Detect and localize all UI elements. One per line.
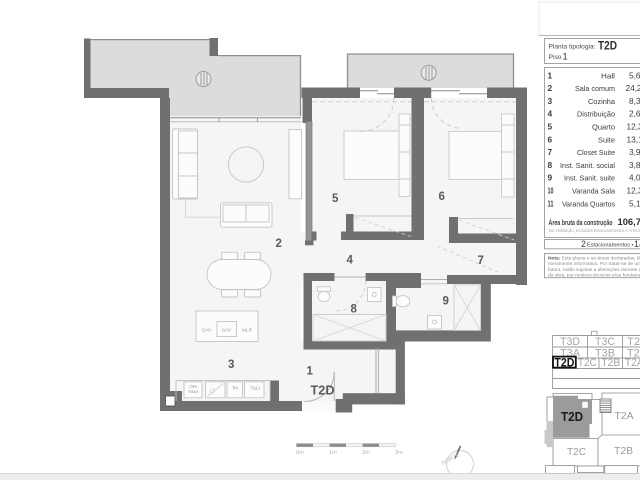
svg-text:MO: MO bbox=[189, 384, 197, 389]
svg-text:T2F: T2F bbox=[627, 336, 640, 348]
svg-text:11: 11 bbox=[548, 198, 554, 208]
svg-text:Inst. Sanit. suite: Inst. Sanit. suite bbox=[564, 174, 615, 183]
svg-text:2: 2 bbox=[581, 239, 586, 249]
svg-text:12,30: 12,30 bbox=[627, 122, 640, 132]
svg-text:5: 5 bbox=[548, 122, 553, 132]
svg-text:4: 4 bbox=[347, 255, 354, 267]
svg-text:Sut Habitação, excluídas Estac: Sut Habitação, excluídas Estacionamentos… bbox=[549, 228, 640, 233]
svg-text:Hall: Hall bbox=[601, 71, 615, 80]
svg-text:Closet Suite: Closet Suite bbox=[577, 148, 615, 157]
svg-text:Piso: Piso bbox=[549, 54, 562, 61]
svg-text:9: 9 bbox=[443, 296, 449, 308]
svg-text:1: 1 bbox=[307, 366, 314, 378]
svg-text:MLR: MLR bbox=[242, 327, 253, 333]
svg-text:8: 8 bbox=[351, 304, 358, 316]
svg-text:Nota: Esta planta e as áreas d: Nota: Esta planta e as áreas declaradas,… bbox=[548, 255, 640, 261]
svg-text:T2A: T2A bbox=[625, 357, 640, 369]
svg-text:7: 7 bbox=[478, 255, 484, 267]
svg-text:6: 6 bbox=[439, 191, 445, 203]
svg-text:24,20: 24,20 bbox=[626, 83, 640, 93]
svg-text:3,80: 3,80 bbox=[629, 160, 640, 170]
svg-text:GAV: GAV bbox=[202, 327, 213, 333]
svg-text:9: 9 bbox=[548, 173, 553, 183]
svg-text:5,60: 5,60 bbox=[629, 70, 640, 80]
svg-text:futuro, estão sujeitas a alter: futuro, estão sujeitas a alterações dura… bbox=[548, 267, 640, 273]
svg-text:Cozinha: Cozinha bbox=[588, 97, 616, 106]
svg-text:FRG: FRG bbox=[250, 386, 260, 391]
svg-text:T3C: T3C bbox=[595, 336, 615, 348]
svg-text:meramente informativa. Por tra: meramente informativa. Por tratar-se de … bbox=[548, 261, 640, 267]
svg-text:3,90: 3,90 bbox=[629, 147, 640, 157]
svg-text:T3D: T3D bbox=[560, 336, 580, 348]
svg-text:3: 3 bbox=[228, 359, 234, 371]
svg-text:2: 2 bbox=[276, 238, 282, 250]
svg-text:Suite: Suite bbox=[598, 135, 615, 144]
svg-text:1: 1 bbox=[563, 52, 568, 62]
svg-text:2: 2 bbox=[548, 83, 553, 93]
svg-text:7: 7 bbox=[548, 147, 553, 157]
svg-text:8,30: 8,30 bbox=[629, 96, 640, 106]
svg-text:T2B: T2B bbox=[614, 446, 633, 457]
svg-text:10: 10 bbox=[548, 186, 554, 196]
svg-text:106,70: 106,70 bbox=[618, 216, 640, 227]
svg-text:3m: 3m bbox=[395, 450, 403, 456]
svg-text:2m: 2m bbox=[362, 450, 370, 456]
svg-text:Quarto: Quarto bbox=[592, 123, 615, 132]
svg-text:Distribuição: Distribuição bbox=[577, 110, 615, 119]
svg-text:T2D: T2D bbox=[598, 38, 617, 52]
svg-text:0m: 0m bbox=[296, 450, 304, 456]
svg-text:ML: ML bbox=[231, 386, 238, 391]
svg-text:T2C: T2C bbox=[578, 357, 597, 369]
svg-text:Estacionamentos •: Estacionamentos • bbox=[587, 242, 633, 248]
svg-text:da obra, por motivos técnicos: da obra, por motivos técnicos e/ou funda… bbox=[548, 272, 640, 278]
svg-text:6: 6 bbox=[548, 134, 553, 144]
svg-text:T2A: T2A bbox=[615, 411, 634, 422]
svg-text:Varanda Sala: Varanda Sala bbox=[572, 187, 616, 196]
svg-text:Sala comum: Sala comum bbox=[575, 84, 615, 93]
svg-text:T2D: T2D bbox=[554, 358, 574, 370]
svg-text:13,10: 13,10 bbox=[627, 134, 640, 144]
svg-text:T2B: T2B bbox=[601, 357, 620, 369]
svg-text:4: 4 bbox=[548, 109, 553, 119]
svg-text:1: 1 bbox=[548, 70, 553, 80]
svg-text:Área bruta da construção: Área bruta da construção bbox=[549, 218, 613, 227]
svg-text:12,30: 12,30 bbox=[627, 186, 640, 196]
svg-text:1m: 1m bbox=[329, 450, 337, 456]
svg-text:T2D: T2D bbox=[311, 384, 335, 398]
svg-text:Varanda Quartos: Varanda Quartos bbox=[562, 199, 615, 208]
svg-text:2,60: 2,60 bbox=[629, 109, 640, 119]
svg-text:GAV: GAV bbox=[222, 327, 233, 333]
svg-text:Inst. Sanit. social: Inst. Sanit. social bbox=[560, 161, 615, 170]
svg-text:Planta tipologia:: Planta tipologia: bbox=[549, 44, 596, 51]
svg-text:3: 3 bbox=[548, 96, 553, 106]
svg-text:5: 5 bbox=[332, 193, 339, 205]
svg-text:T2C: T2C bbox=[567, 447, 586, 458]
svg-text:4,00: 4,00 bbox=[629, 173, 640, 183]
svg-text:8: 8 bbox=[548, 160, 553, 170]
svg-text:5,10: 5,10 bbox=[629, 198, 640, 208]
svg-text:T2D: T2D bbox=[561, 410, 583, 424]
